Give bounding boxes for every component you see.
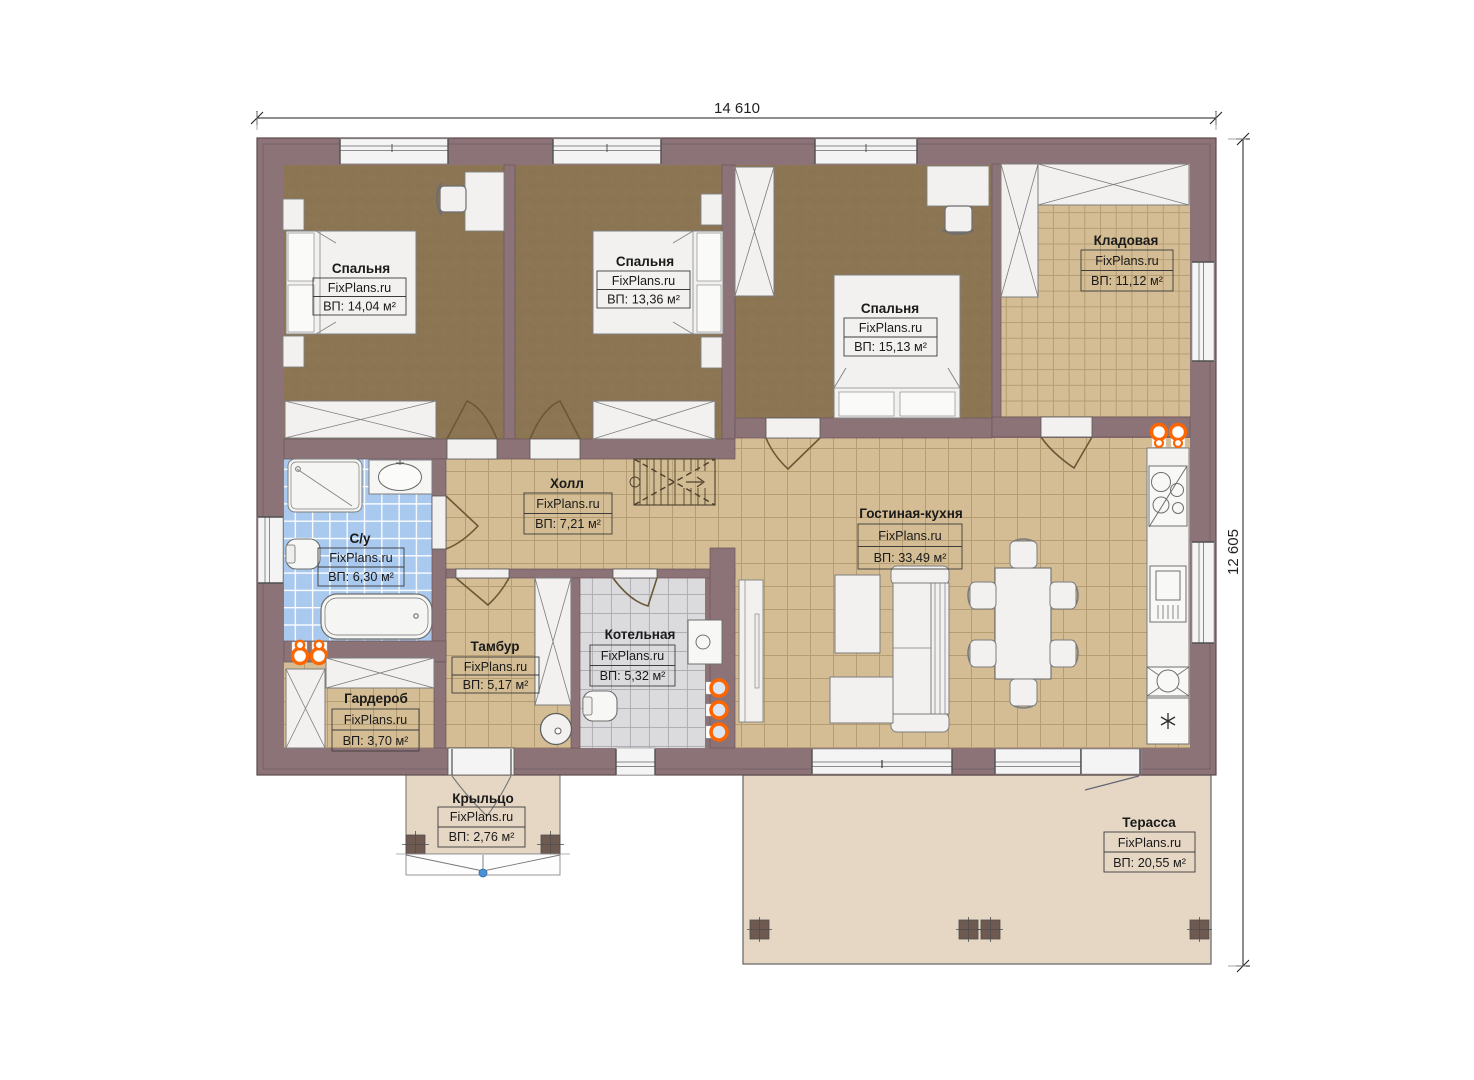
svg-text:ВП: 6,30 м²: ВП: 6,30 м² [328, 570, 394, 584]
svg-text:FixPlans.ru: FixPlans.ru [1118, 836, 1181, 850]
svg-text:12 605: 12 605 [1225, 529, 1242, 575]
svg-text:ВП: 3,70 м²: ВП: 3,70 м² [343, 734, 409, 748]
svg-text:Котельная: Котельная [605, 627, 676, 642]
svg-text:ВП: 7,21 м²: ВП: 7,21 м² [535, 517, 601, 531]
svg-text:Спальня: Спальня [332, 261, 390, 276]
svg-text:FixPlans.ru: FixPlans.ru [601, 649, 664, 663]
svg-text:Холл: Холл [550, 476, 584, 491]
svg-text:FixPlans.ru: FixPlans.ru [1095, 254, 1158, 268]
svg-text:FixPlans.ru: FixPlans.ru [859, 321, 922, 335]
svg-text:ВП: 20,55 м²: ВП: 20,55 м² [1113, 856, 1186, 870]
svg-text:FixPlans.ru: FixPlans.ru [328, 281, 391, 295]
svg-text:FixPlans.ru: FixPlans.ru [612, 274, 675, 288]
svg-text:FixPlans.ru: FixPlans.ru [344, 713, 407, 727]
svg-text:С/у: С/у [349, 531, 371, 546]
svg-text:ВП: 13,36 м²: ВП: 13,36 м² [607, 293, 680, 307]
svg-text:Гардероб: Гардероб [344, 691, 408, 706]
svg-text:Терасса: Терасса [1122, 815, 1176, 830]
svg-text:FixPlans.ru: FixPlans.ru [536, 497, 599, 511]
svg-text:Гостиная-кухня: Гостиная-кухня [859, 506, 962, 521]
svg-text:14 610: 14 610 [714, 100, 760, 117]
svg-text:Спальня: Спальня [861, 301, 919, 316]
svg-text:ВП: 5,32 м²: ВП: 5,32 м² [600, 669, 666, 683]
svg-text:Кладовая: Кладовая [1094, 233, 1159, 248]
svg-text:ВП: 33,49 м²: ВП: 33,49 м² [874, 551, 947, 565]
svg-text:FixPlans.ru: FixPlans.ru [464, 660, 527, 674]
svg-text:ВП: 2,76 м²: ВП: 2,76 м² [449, 830, 515, 844]
svg-text:Крыльцо: Крыльцо [452, 791, 513, 806]
svg-text:Тамбур: Тамбур [471, 639, 520, 654]
svg-text:Спальня: Спальня [616, 254, 674, 269]
svg-text:ВП: 15,13 м²: ВП: 15,13 м² [854, 340, 927, 354]
svg-text:FixPlans.ru: FixPlans.ru [450, 810, 513, 824]
svg-text:FixPlans.ru: FixPlans.ru [329, 551, 392, 565]
svg-text:ВП: 11,12 м²: ВП: 11,12 м² [1091, 274, 1163, 288]
svg-text:ВП: 5,17 м²: ВП: 5,17 м² [463, 678, 529, 692]
svg-text:FixPlans.ru: FixPlans.ru [878, 529, 941, 543]
svg-text:ВП: 14,04 м²: ВП: 14,04 м² [323, 300, 396, 314]
